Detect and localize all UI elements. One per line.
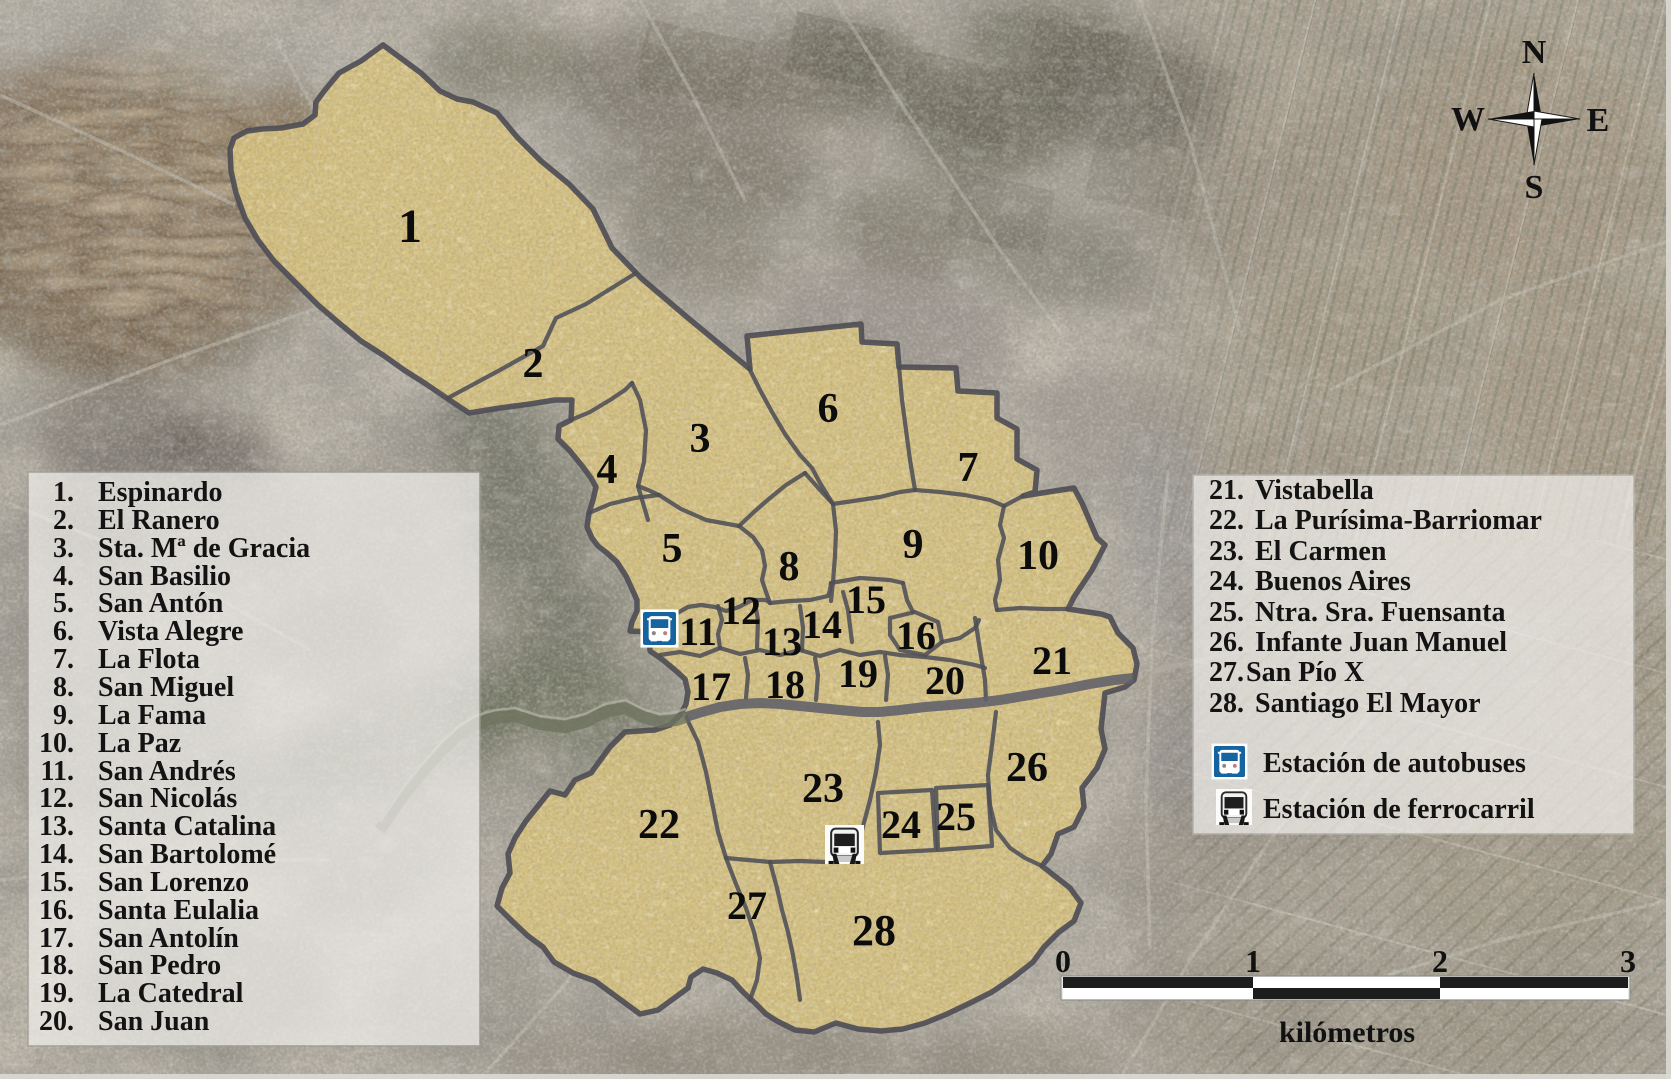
svg-text:23.: 23.	[1209, 536, 1244, 567]
svg-text:Ntra. Sra. Fuensanta: Ntra. Sra. Fuensanta	[1255, 597, 1505, 628]
svg-text:27: 27	[727, 883, 767, 928]
svg-text:N: N	[1522, 34, 1547, 71]
svg-text:11: 11	[679, 609, 717, 654]
svg-text:26.: 26.	[1209, 627, 1244, 658]
svg-text:28.: 28.	[1209, 688, 1244, 719]
svg-text:La Paz: La Paz	[98, 728, 181, 759]
svg-text:19.: 19.	[39, 978, 74, 1009]
svg-text:5: 5	[662, 526, 683, 572]
svg-text:El Carmen: El Carmen	[1255, 536, 1387, 567]
svg-text:15.: 15.	[39, 867, 74, 898]
svg-text:23: 23	[802, 766, 844, 812]
svg-text:San Bartolomé: San Bartolomé	[98, 839, 276, 870]
svg-text:18: 18	[765, 662, 805, 707]
svg-text:Santa Catalina: Santa Catalina	[98, 811, 276, 842]
svg-text:2: 2	[1432, 943, 1448, 979]
svg-text:22.: 22.	[1209, 505, 1244, 536]
svg-text:E: E	[1587, 102, 1610, 139]
svg-text:15: 15	[846, 577, 886, 622]
svg-text:14.: 14.	[39, 839, 74, 870]
svg-text:28: 28	[852, 906, 896, 955]
svg-text:13.: 13.	[39, 811, 74, 842]
svg-text:4: 4	[597, 447, 618, 493]
svg-text:24: 24	[881, 802, 921, 847]
svg-text:S: S	[1525, 169, 1544, 206]
svg-text:1.: 1.	[53, 477, 74, 508]
svg-text:25.: 25.	[1209, 597, 1244, 628]
svg-text:San Pío X: San Pío X	[1246, 657, 1364, 688]
svg-text:21.: 21.	[1209, 475, 1244, 506]
svg-text:13: 13	[762, 619, 802, 664]
svg-text:Espinardo: Espinardo	[98, 477, 223, 508]
svg-text:6.: 6.	[53, 616, 74, 647]
svg-text:17: 17	[691, 664, 731, 709]
svg-text:22: 22	[638, 802, 680, 848]
svg-text:Infante Juan Manuel: Infante Juan Manuel	[1255, 627, 1507, 658]
svg-text:2.: 2.	[53, 505, 74, 536]
svg-text:16: 16	[896, 613, 936, 658]
svg-text:0: 0	[1055, 943, 1071, 979]
svg-text:W: W	[1451, 101, 1485, 138]
svg-text:21: 21	[1032, 638, 1072, 683]
svg-text:3.: 3.	[53, 533, 74, 564]
svg-text:20.: 20.	[39, 1006, 74, 1037]
svg-text:San Juan: San Juan	[98, 1006, 210, 1037]
svg-text:3: 3	[1620, 943, 1636, 979]
svg-text:kilómetros: kilómetros	[1279, 1016, 1415, 1049]
svg-text:San Antón: San Antón	[98, 588, 224, 619]
svg-text:La Flota: La Flota	[98, 644, 200, 675]
svg-text:3: 3	[690, 416, 711, 462]
svg-text:20: 20	[925, 658, 965, 703]
svg-text:16.: 16.	[39, 895, 74, 926]
svg-text:8.: 8.	[53, 672, 74, 703]
svg-text:San Pedro: San Pedro	[98, 950, 221, 981]
svg-text:6: 6	[818, 386, 839, 432]
svg-text:12.: 12.	[39, 783, 74, 814]
svg-text:10: 10	[1017, 533, 1059, 579]
svg-text:7: 7	[958, 445, 979, 491]
svg-text:Santiago El Mayor: Santiago El Mayor	[1255, 688, 1481, 719]
svg-text:Vistabella: Vistabella	[1255, 475, 1374, 506]
svg-text:1: 1	[1245, 943, 1261, 979]
svg-text:14: 14	[802, 602, 842, 647]
svg-text:8: 8	[779, 544, 800, 590]
svg-text:9: 9	[903, 522, 924, 568]
svg-text:Sta. Mª de Gracia: Sta. Mª de Gracia	[98, 533, 310, 564]
svg-text:Vista Alegre: Vista Alegre	[98, 616, 243, 647]
svg-text:25: 25	[936, 794, 976, 839]
svg-text:La Catedral: La Catedral	[98, 978, 244, 1009]
svg-text:12: 12	[721, 588, 761, 633]
svg-text:5.: 5.	[53, 588, 74, 619]
svg-text:La Purísima-Barriomar: La Purísima-Barriomar	[1255, 505, 1542, 536]
svg-text:Estación de ferrocarril: Estación de ferrocarril	[1263, 794, 1535, 825]
svg-text:Santa Eulalia: Santa Eulalia	[98, 895, 259, 926]
svg-text:El Ranero: El Ranero	[98, 505, 220, 536]
svg-text:10.: 10.	[39, 728, 74, 759]
svg-text:9.: 9.	[53, 700, 74, 731]
svg-text:La Fama: La Fama	[98, 700, 206, 731]
svg-text:7.: 7.	[53, 644, 74, 675]
svg-text:San Nicolás: San Nicolás	[98, 783, 237, 814]
svg-text:Estación de autobuses: Estación de autobuses	[1263, 748, 1526, 779]
svg-text:Buenos Aires: Buenos Aires	[1255, 566, 1411, 597]
svg-text:24.: 24.	[1209, 566, 1244, 597]
svg-text:2: 2	[523, 341, 544, 387]
svg-text:18.: 18.	[39, 950, 74, 981]
svg-text:19: 19	[838, 651, 878, 696]
svg-text:1: 1	[398, 200, 422, 253]
svg-text:San Miguel: San Miguel	[98, 672, 234, 703]
svg-text:San Lorenzo: San Lorenzo	[98, 867, 249, 898]
svg-text:26: 26	[1006, 745, 1048, 791]
svg-text:27.: 27.	[1209, 657, 1244, 688]
